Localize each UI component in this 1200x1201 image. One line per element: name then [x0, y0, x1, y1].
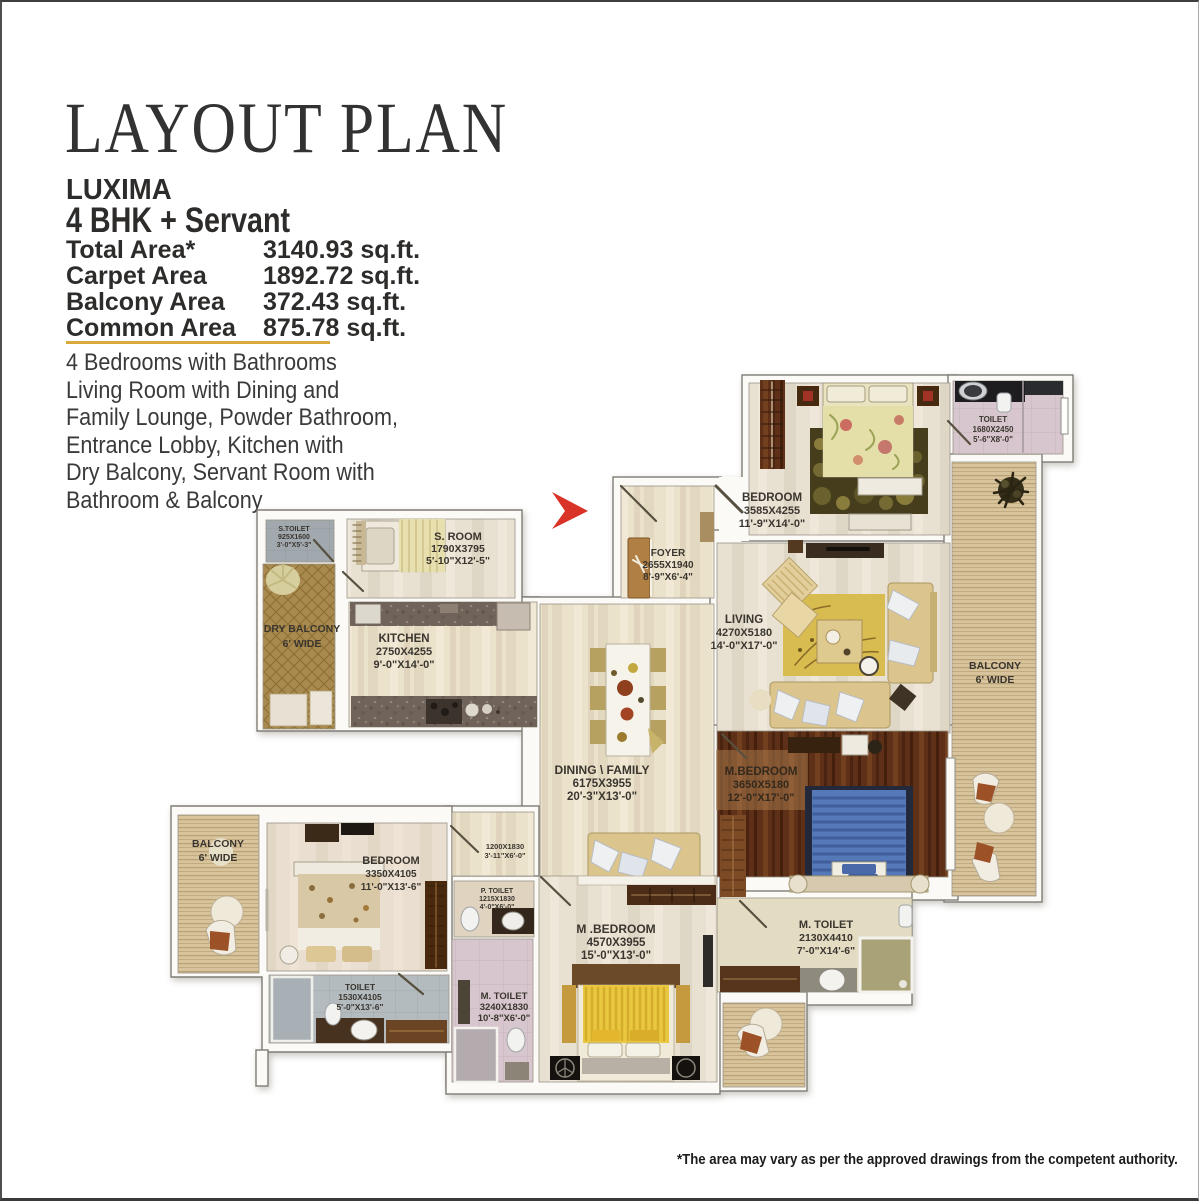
svg-text:M.BEDROOM: M.BEDROOM: [725, 766, 798, 778]
svg-text:8'-9"X6'-4": 8'-9"X6'-4": [643, 572, 693, 583]
svg-text:S.TOILET: S.TOILET: [278, 526, 310, 533]
svg-text:3585X4255: 3585X4255: [744, 505, 800, 517]
svg-text:6' WIDE: 6' WIDE: [283, 638, 322, 650]
svg-text:3'-0"X5'-3": 3'-0"X5'-3": [277, 542, 312, 549]
svg-text:TOILET: TOILET: [979, 415, 1007, 424]
svg-text:4'-0"X6'-0": 4'-0"X6'-0": [480, 904, 515, 911]
svg-text:1530X4105: 1530X4105: [338, 992, 382, 1002]
svg-text:2130X4410: 2130X4410: [799, 932, 853, 944]
svg-text:M. TOILET: M. TOILET: [481, 991, 528, 1002]
svg-text:DRY BALCONY: DRY BALCONY: [264, 623, 340, 635]
svg-text:5'-0"X13'-6": 5'-0"X13'-6": [336, 1002, 383, 1012]
svg-text:TOILET: TOILET: [345, 982, 376, 992]
svg-text:20'-3"X13'-0": 20'-3"X13'-0": [567, 791, 637, 803]
svg-text:BEDROOM: BEDROOM: [362, 855, 419, 867]
svg-text:2655X1940: 2655X1940: [642, 560, 694, 571]
svg-text:4570X3955: 4570X3955: [587, 937, 646, 949]
svg-text:5'-10"X12'-5": 5'-10"X12'-5": [426, 555, 490, 567]
svg-text:S. ROOM: S. ROOM: [434, 531, 482, 543]
svg-text:BALCONY: BALCONY: [969, 660, 1021, 672]
svg-text:M .BEDROOM: M .BEDROOM: [576, 922, 655, 936]
svg-text:P. TOILET: P. TOILET: [481, 888, 514, 895]
svg-text:3650X5180: 3650X5180: [733, 779, 789, 791]
svg-text:5'-6"X8'-0": 5'-6"X8'-0": [973, 435, 1013, 444]
svg-text:3350X4105: 3350X4105: [365, 869, 417, 880]
svg-text:1680X2450: 1680X2450: [973, 425, 1014, 434]
svg-text:1200X1830: 1200X1830: [486, 842, 524, 851]
svg-text:7'-0"X14'-6": 7'-0"X14'-6": [797, 945, 855, 957]
svg-text:14'-0"X17'-0": 14'-0"X17'-0": [710, 640, 777, 652]
svg-text:BALCONY: BALCONY: [192, 838, 244, 850]
svg-text:10'-8"X6'-0": 10'-8"X6'-0": [478, 1013, 531, 1024]
svg-text:BEDROOM: BEDROOM: [742, 492, 802, 504]
svg-text:925X1600: 925X1600: [278, 534, 310, 541]
svg-text:3240X1830: 3240X1830: [480, 1002, 529, 1013]
svg-text:3'-11"X6'-0": 3'-11"X6'-0": [484, 851, 526, 860]
svg-text:KITCHEN: KITCHEN: [378, 633, 429, 645]
svg-text:1790X3795: 1790X3795: [431, 543, 485, 555]
svg-text:FOYER: FOYER: [651, 548, 686, 559]
svg-text:1215X1830: 1215X1830: [479, 896, 515, 903]
svg-text:4270X5180: 4270X5180: [716, 627, 772, 639]
svg-text:11'-9"X14'-0": 11'-9"X14'-0": [739, 518, 805, 530]
svg-text:M. TOILET: M. TOILET: [799, 919, 853, 931]
svg-text:DINING \ FAMILY: DINING \ FAMILY: [555, 763, 650, 777]
svg-text:2750X4255: 2750X4255: [376, 646, 432, 658]
svg-text:6' WIDE: 6' WIDE: [976, 674, 1015, 686]
svg-text:9'-0"X14'-0": 9'-0"X14'-0": [374, 659, 435, 671]
svg-text:6175X3955: 6175X3955: [573, 778, 632, 790]
svg-text:15'-0"X13'-0": 15'-0"X13'-0": [581, 950, 651, 962]
svg-text:6' WIDE: 6' WIDE: [199, 852, 238, 864]
svg-text:LIVING: LIVING: [725, 614, 763, 626]
svg-text:11'-0"X13'-6": 11'-0"X13'-6": [361, 882, 422, 893]
svg-text:12'-0"X17'-0": 12'-0"X17'-0": [727, 792, 794, 804]
